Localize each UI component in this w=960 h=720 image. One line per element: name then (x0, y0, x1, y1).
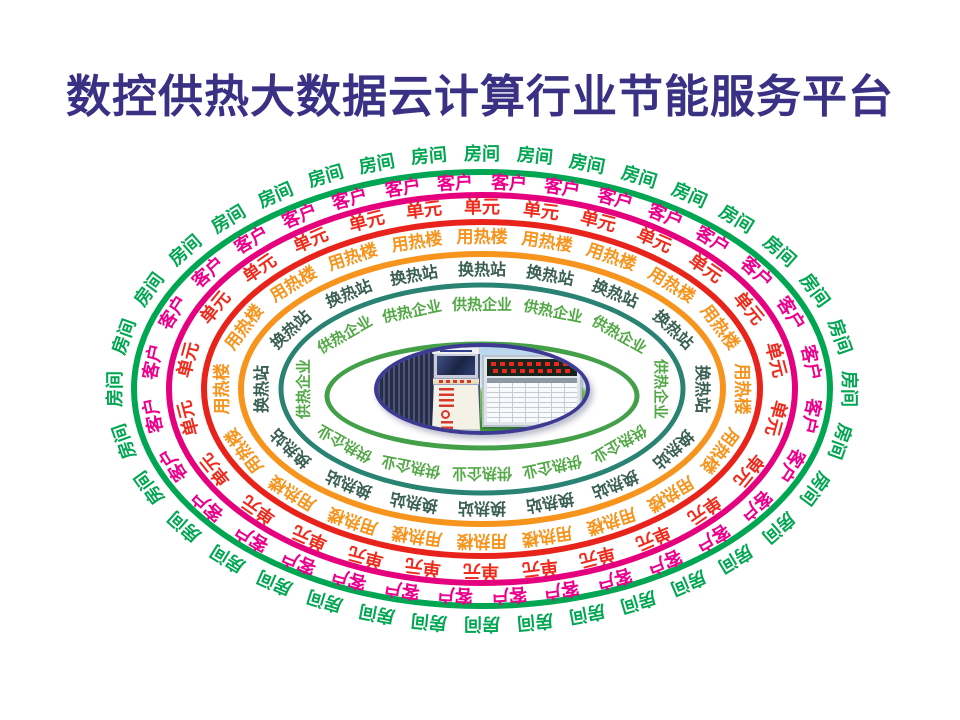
ring-label-room: 房间 (516, 610, 554, 631)
poster: 数控供热大数据云计算行业节能服务平台 房间房间房间 (0, 0, 960, 720)
ring-label-room: 房间 (824, 421, 853, 461)
ring-label-room: 房间 (824, 317, 853, 357)
center-photo (374, 343, 590, 435)
kiosk-label-band (433, 378, 479, 385)
ring-label-heat-exchange-station: 换热站 (458, 500, 506, 516)
kiosk-header (432, 347, 480, 354)
ring-label-unit: 单元 (521, 555, 559, 577)
ring-label-heat-building: 用热楼 (215, 364, 232, 415)
ring-label-heat-exchange-station: 换热站 (458, 262, 506, 278)
ring-label-customer: 客户 (437, 174, 474, 194)
kiosk-screen (434, 354, 478, 378)
ring-label-unit: 单元 (522, 200, 560, 222)
ring-label-room: 房间 (567, 601, 606, 625)
ring-label-room: 房间 (107, 371, 125, 407)
board-led-text (487, 359, 577, 376)
ring-label-heat-supply-enterprise: 供热企业 (652, 359, 667, 419)
ring-label-heat-building: 用热楼 (457, 532, 508, 549)
ring-label-unit: 单元 (405, 200, 443, 222)
ring-label-customer: 客户 (542, 577, 580, 600)
ring-label-heat-supply-enterprise: 供热企业 (452, 466, 512, 481)
ring-label-unit: 单元 (464, 199, 500, 217)
kiosk-body (432, 385, 480, 429)
ring-label-room: 房间 (410, 610, 448, 631)
ring-label-room: 房间 (358, 153, 397, 177)
ring-label-room: 房间 (357, 601, 396, 625)
ring-label-heat-building: 用热楼 (457, 230, 508, 247)
ring-label-unit: 单元 (404, 555, 442, 577)
ring-label-room: 房间 (305, 587, 345, 615)
ring-label-unit: 单元 (463, 561, 499, 579)
ring-label-customer: 客户 (491, 174, 528, 194)
kiosk-machine (432, 347, 480, 431)
kiosk-red-text-small (441, 421, 453, 429)
ring-label-customer: 客户 (383, 577, 421, 600)
ring-label-room: 房间 (111, 421, 140, 461)
led-display-board (482, 355, 582, 427)
ring-label-customer: 客户 (490, 584, 527, 604)
ring-label-room: 房间 (517, 147, 555, 168)
ring-label-customer: 客户 (436, 584, 473, 604)
ring-diagram: 房间房间房间房间房间房间房间房间房间房间房间房间房间房间房间房间房间房间房间房间… (0, 0, 960, 720)
ring-label-heat-supply-enterprise: 供热企业 (452, 298, 512, 313)
kiosk-red-text-lines (439, 388, 454, 408)
ring-label-heat-supply-enterprise: 供热企业 (297, 359, 312, 419)
ring-label-heat-exchange-station: 换热站 (694, 365, 710, 413)
board-data-table (487, 378, 577, 422)
ring-label-room: 房间 (618, 587, 658, 615)
ring-label-room: 房间 (411, 147, 449, 168)
ring-label-room: 房间 (839, 371, 857, 407)
ring-label-room: 房间 (568, 153, 607, 177)
ring-label-heat-exchange-station: 换热站 (254, 365, 270, 413)
ring-label-room: 房间 (464, 146, 500, 164)
kiosk-emblem-icon (441, 410, 450, 419)
ring-label-heat-building: 用热楼 (733, 364, 750, 415)
ring-label-room: 房间 (464, 614, 500, 632)
